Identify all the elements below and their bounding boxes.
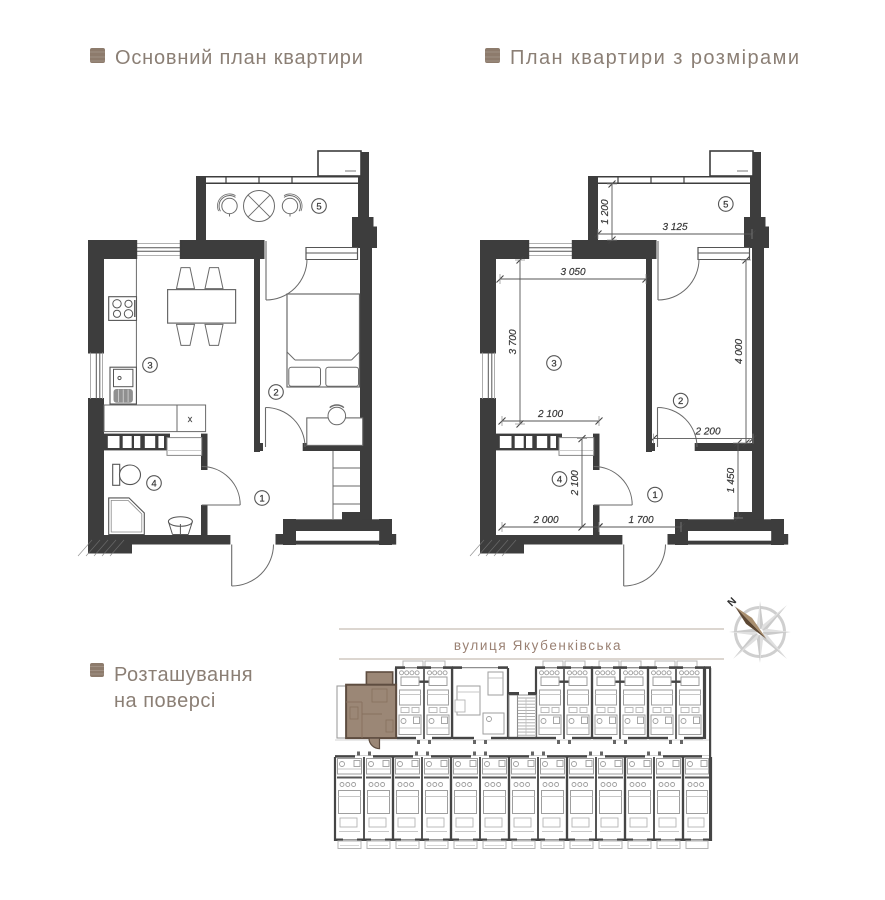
svg-text:3: 3: [551, 358, 556, 369]
svg-text:1 700: 1 700: [628, 515, 653, 526]
svg-text:1 450: 1 450: [726, 468, 737, 493]
svg-text:вулиця Якубенківська: вулиця Якубенківська: [454, 638, 622, 653]
svg-text:1: 1: [652, 490, 657, 501]
svg-text:1: 1: [259, 493, 264, 504]
svg-text:2 100: 2 100: [537, 409, 563, 420]
svg-text:4 000: 4 000: [734, 339, 745, 364]
svg-text:3 050: 3 050: [560, 267, 585, 278]
svg-text:2: 2: [273, 387, 278, 398]
svg-text:2 000: 2 000: [532, 515, 558, 526]
svg-text:3: 3: [147, 360, 152, 371]
svg-text:Основний план квартири: Основний план квартири: [115, 47, 364, 69]
svg-text:3 125: 3 125: [662, 222, 687, 233]
svg-text:на поверсі: на поверсі: [114, 690, 216, 712]
svg-text:2 100: 2 100: [570, 470, 581, 496]
svg-text:1 200: 1 200: [600, 199, 611, 224]
svg-text:Розташування: Розташування: [114, 664, 253, 686]
svg-text:4: 4: [151, 478, 156, 489]
svg-text:2: 2: [678, 396, 683, 407]
svg-text:4: 4: [557, 474, 562, 485]
svg-text:5: 5: [316, 201, 321, 212]
svg-text:План квартири з розмірами: План квартири з розмірами: [510, 47, 800, 69]
svg-text:x: x: [188, 414, 193, 424]
svg-text:N: N: [725, 595, 739, 609]
svg-text:3 700: 3 700: [508, 329, 519, 354]
svg-text:5: 5: [723, 199, 728, 210]
svg-text:2 200: 2 200: [694, 427, 720, 438]
